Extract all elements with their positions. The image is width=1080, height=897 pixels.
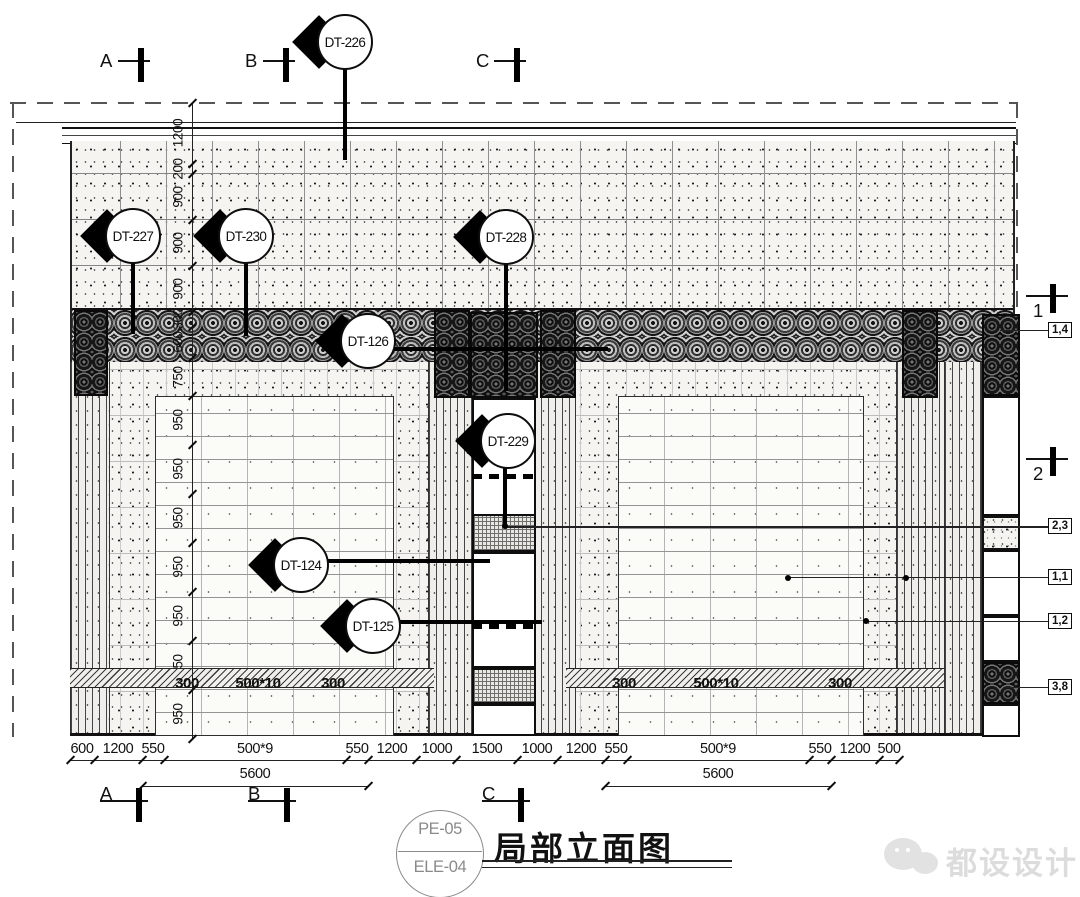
wechat-icon-small-bubble xyxy=(912,852,938,874)
dim-value: 500*9 xyxy=(237,741,273,757)
dim-value: 600 xyxy=(171,331,186,352)
section-marker-c-bottom: C xyxy=(482,783,495,805)
detail-callout-dt126: DT-126 xyxy=(340,313,396,369)
return-stone-band xyxy=(982,516,1020,550)
material-tag: 1,4 xyxy=(1048,322,1072,338)
central-white-panel xyxy=(472,704,536,736)
material-tag: 3,8 xyxy=(1048,679,1072,695)
callout-label: DT-125 xyxy=(345,598,401,654)
section-symbol xyxy=(138,48,144,82)
dim-value: 200 xyxy=(171,158,186,179)
title-bubble-divider xyxy=(398,851,482,852)
dim-value: 1200 xyxy=(103,741,134,757)
leader-dot xyxy=(502,523,508,529)
material-tag: 1,2 xyxy=(1048,613,1072,629)
detail-callout-dt226: DT-226 xyxy=(317,14,373,70)
callout-label: DT-124 xyxy=(273,537,329,593)
leader-dt126 xyxy=(394,347,608,351)
section-symbol xyxy=(1026,458,1068,460)
section-symbol xyxy=(1026,295,1068,297)
detail-callout-dt125: DT-125 xyxy=(345,598,401,654)
callout-label: DT-126 xyxy=(340,313,396,369)
detail-callout-dt124: DT-124 xyxy=(273,537,329,593)
section-symbol xyxy=(118,60,150,62)
dim-value: 550 xyxy=(142,741,165,757)
return-white-panel xyxy=(982,396,1020,516)
wechat-icon-eye xyxy=(906,848,910,852)
section-marker-a-top: A xyxy=(100,50,112,72)
dimension-tick xyxy=(827,781,836,790)
total-dimension-line xyxy=(142,786,368,787)
section-symbol xyxy=(283,48,289,82)
central-mosaic-band xyxy=(472,668,536,704)
dimension-tick xyxy=(138,781,147,790)
elevation-code: ELE-04 xyxy=(414,858,467,877)
section-marker-b-top: B xyxy=(245,50,257,72)
pilaster-flute xyxy=(428,362,478,733)
wall-dim-value: 500*10 xyxy=(235,675,280,692)
dim-value: 900 xyxy=(171,186,186,207)
hidden-line xyxy=(472,474,534,479)
dim-value: 1500 xyxy=(472,741,503,757)
leader-dt124 xyxy=(327,559,490,563)
bottom-dimension-line xyxy=(70,760,899,761)
top-boundary-line xyxy=(10,102,1018,104)
tag-leader-3-8 xyxy=(1006,687,1048,688)
dimension-tick xyxy=(412,755,421,764)
section-marker-a-bottom: A xyxy=(100,783,112,805)
dim-value: 1000 xyxy=(422,741,453,757)
tag-leader-2-3 xyxy=(505,526,1048,528)
detail-callout-dt227: DT-227 xyxy=(105,208,161,264)
left-boundary-line xyxy=(12,102,14,737)
wall-dim-value: 300 xyxy=(175,675,199,692)
cornice-inner-line xyxy=(62,135,1016,136)
wechat-icon-eye xyxy=(895,848,899,852)
sheet-code: PE-05 xyxy=(418,820,462,839)
ornate-pilaster-panel xyxy=(902,310,938,398)
tag-leader-1-2 xyxy=(866,621,1048,622)
dim-value: 900 xyxy=(171,278,186,299)
ornate-pilaster-panel xyxy=(434,310,470,398)
dim-value: 950 xyxy=(171,703,186,724)
central-white-panel xyxy=(472,552,536,668)
dim-value: 900 xyxy=(171,232,186,253)
section-marker-1-right: 1 xyxy=(1033,300,1043,322)
leader-dt230 xyxy=(244,262,248,336)
dim-value: 550 xyxy=(605,741,628,757)
detail-callout-dt230: DT-230 xyxy=(218,208,274,264)
dim-total: 5600 xyxy=(240,766,271,782)
leader-dt227 xyxy=(131,262,135,334)
section-marker-c-top: C xyxy=(476,50,489,72)
dim-value: 600 xyxy=(71,741,94,757)
hidden-line xyxy=(472,624,534,629)
leader-dt228 xyxy=(504,263,508,391)
dim-value: 950 xyxy=(171,605,186,626)
total-dimension-line xyxy=(605,786,831,787)
material-tag: 2,3 xyxy=(1048,518,1072,534)
callout-label: DT-229 xyxy=(480,413,536,469)
left-dimension-line xyxy=(192,103,193,739)
dim-value: 500*9 xyxy=(700,741,736,757)
section-symbol xyxy=(263,60,295,62)
dim-value: 1200 xyxy=(171,119,186,147)
dim-value: 550 xyxy=(346,741,369,757)
dim-value: 950 xyxy=(171,458,186,479)
dim-value: 1000 xyxy=(522,741,553,757)
section-marker-2-right: 2 xyxy=(1033,463,1043,485)
dimension-tick xyxy=(553,755,562,764)
pilaster-flute xyxy=(944,362,982,733)
detail-callout-dt228: DT-228 xyxy=(478,209,534,265)
return-ornate-panel xyxy=(982,314,1020,396)
material-tag: 1,1 xyxy=(1048,569,1072,585)
ornate-pilaster-panel xyxy=(540,310,576,398)
return-white-panel xyxy=(982,550,1020,616)
wall-dim-value: 300 xyxy=(828,675,852,692)
dim-value: 550 xyxy=(809,741,832,757)
elevation-drawing: 1,4 2,3 1,1 1,2 3,8 DT-226 DT-227 DT-230… xyxy=(0,0,1080,897)
dimension-tick xyxy=(364,781,373,790)
dim-value: 1200 xyxy=(377,741,408,757)
dimension-tick xyxy=(601,781,610,790)
dim-value: 300 xyxy=(171,308,186,329)
ornate-pilaster-panel xyxy=(74,310,108,396)
wall-dim-value: 500*10 xyxy=(693,675,738,692)
ceiling-line xyxy=(16,122,1016,123)
wall-dim-value: 300 xyxy=(321,675,345,692)
return-white-panel xyxy=(982,704,1020,737)
section-symbol xyxy=(1050,447,1056,476)
section-symbol xyxy=(518,788,524,822)
section-symbol xyxy=(514,48,520,82)
dim-value: 500 xyxy=(878,741,901,757)
return-ornate-panel xyxy=(982,662,1020,704)
title-underline xyxy=(482,860,732,868)
dim-value: 950 xyxy=(171,556,186,577)
dim-value: 750 xyxy=(171,366,186,387)
watermark-text: 都设设计 xyxy=(946,838,1078,883)
callout-label: DT-230 xyxy=(218,208,274,264)
dimension-tick xyxy=(452,755,461,764)
callout-label: DT-226 xyxy=(317,14,373,70)
detail-callout-dt229: DT-229 xyxy=(480,413,536,469)
dim-value: 950 xyxy=(171,409,186,430)
leader-dot xyxy=(903,575,909,581)
callout-label: DT-227 xyxy=(105,208,161,264)
leader-dot xyxy=(863,618,869,624)
return-white-panel xyxy=(982,616,1020,662)
section-symbol xyxy=(494,60,526,62)
section-symbol xyxy=(284,788,290,822)
wall-dim-value: 300 xyxy=(612,675,636,692)
section-symbol xyxy=(136,788,142,822)
dim-total: 5600 xyxy=(703,766,734,782)
dim-value: 1200 xyxy=(840,741,871,757)
leader-dt226 xyxy=(343,68,347,160)
tag-leader-1-4 xyxy=(1000,330,1048,331)
dim-value: 950 xyxy=(171,507,186,528)
dim-value: 1200 xyxy=(566,741,597,757)
section-symbol xyxy=(1050,284,1056,313)
callout-label: DT-228 xyxy=(478,209,534,265)
tag-leader-1-1 xyxy=(788,577,1048,578)
leader-dot xyxy=(785,575,791,581)
